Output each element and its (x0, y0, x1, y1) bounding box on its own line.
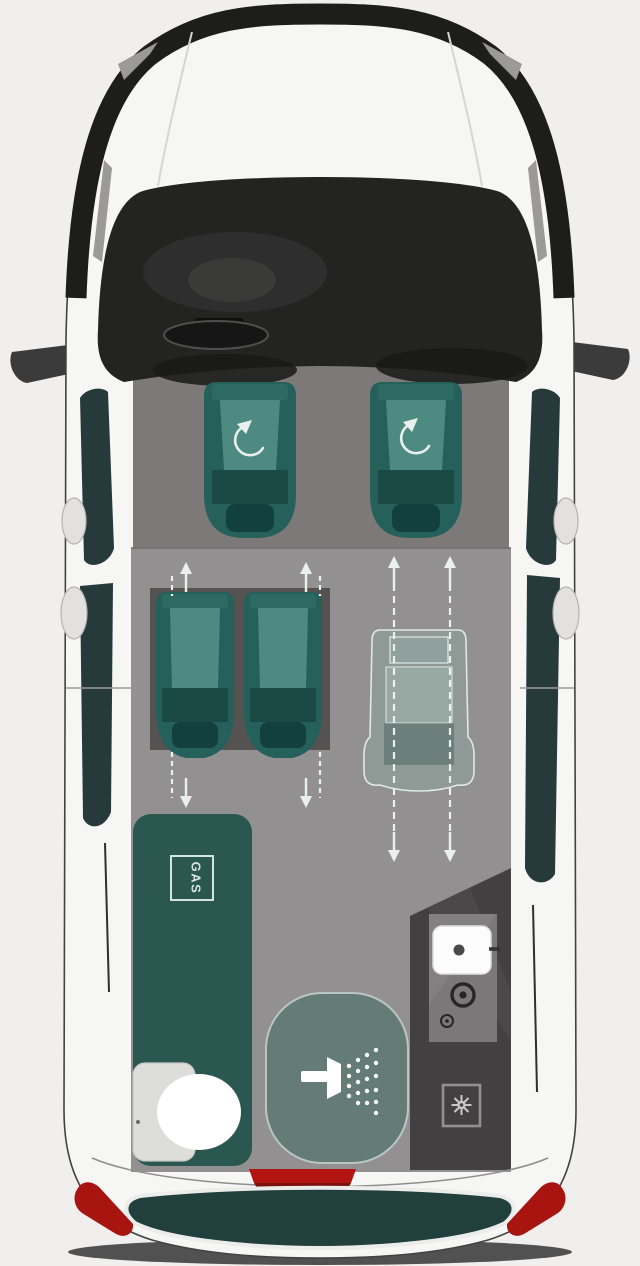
windshield-dashboard (98, 177, 543, 386)
door-handle (61, 587, 87, 639)
rear-step (126, 1188, 513, 1248)
gas-label: GAS (189, 862, 204, 895)
door-handle (553, 587, 579, 639)
bench-seat-right (244, 592, 322, 758)
sink-unit (429, 914, 500, 1042)
door-handle (62, 498, 86, 544)
floorplan-canvas: GAS (0, 0, 640, 1266)
passenger-seat (370, 382, 462, 538)
toilet-bowl (157, 1074, 241, 1150)
brake-light-icon (249, 1169, 356, 1183)
sink-icon (433, 926, 500, 974)
door-handle (554, 498, 578, 544)
driver-seat (204, 382, 296, 538)
campervan-floorplan: GAS (0, 0, 640, 1266)
ghost-seat-outline (364, 630, 474, 791)
bench-seat-left (156, 592, 234, 758)
shower-tray (266, 993, 408, 1163)
